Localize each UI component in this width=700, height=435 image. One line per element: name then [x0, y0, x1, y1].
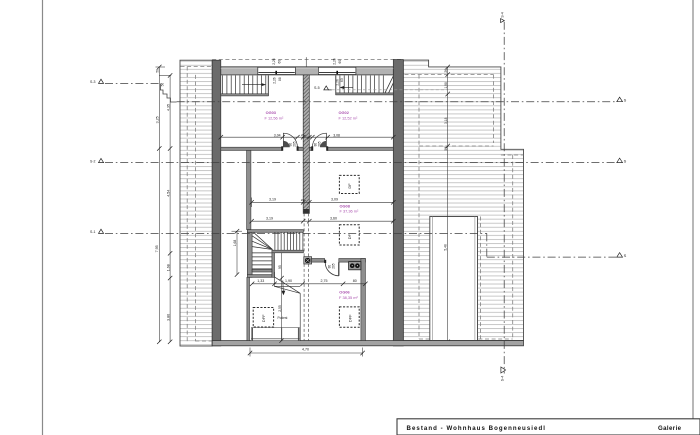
svg-text:1,90: 1,90 — [285, 279, 292, 283]
svg-text:1,98: 1,98 — [444, 82, 448, 89]
svg-text:7,95: 7,95 — [155, 245, 159, 252]
svg-text:95: 95 — [278, 265, 282, 269]
svg-text:3,08: 3,08 — [333, 133, 340, 137]
svg-text:4,70: 4,70 — [302, 347, 309, 351]
svg-text:S: S — [624, 159, 627, 164]
svg-text:S: S — [624, 98, 627, 103]
svg-text:88: 88 — [278, 77, 282, 81]
svg-text:4,35: 4,35 — [166, 104, 170, 111]
svg-text:2,75: 2,75 — [321, 279, 328, 283]
svg-text:F 12,52 m²: F 12,52 m² — [339, 115, 359, 120]
svg-text:2,55: 2,55 — [278, 305, 282, 312]
svg-text:50: 50 — [444, 147, 448, 151]
svg-text:1,33: 1,33 — [257, 279, 264, 283]
svg-text:DF: DF — [347, 183, 352, 189]
svg-text:Galerie: Galerie — [658, 425, 682, 432]
svg-text:S: S — [624, 253, 627, 258]
svg-text:26: 26 — [301, 198, 305, 202]
svg-text:3,18: 3,18 — [444, 117, 448, 124]
svg-text:S-2: S-2 — [90, 159, 96, 163]
svg-text:80: 80 — [353, 279, 357, 283]
svg-text:Podest: Podest — [278, 316, 288, 320]
svg-text:60: 60 — [338, 60, 342, 64]
svg-text:2,26: 2,26 — [273, 77, 277, 84]
svg-text:205: 205 — [332, 263, 336, 269]
svg-text:60: 60 — [340, 78, 344, 82]
svg-text:1,68: 1,68 — [166, 264, 170, 271]
svg-text:3,19: 3,19 — [269, 198, 276, 202]
svg-text:OG06: OG06 — [339, 289, 350, 294]
svg-text:5,48: 5,48 — [443, 244, 447, 251]
svg-text:DF: DF — [347, 234, 352, 240]
svg-text:2,26: 2,26 — [333, 58, 337, 65]
svg-text:26: 26 — [301, 133, 305, 137]
svg-text:3,04: 3,04 — [274, 133, 281, 137]
svg-text:56: 56 — [161, 83, 165, 87]
svg-text:3,25: 3,25 — [156, 116, 160, 123]
svg-text:3,80: 3,80 — [166, 314, 170, 321]
svg-text:205: 205 — [292, 141, 296, 147]
svg-text:DFF: DFF — [347, 314, 352, 322]
svg-text:205: 205 — [317, 141, 321, 147]
svg-text:4,54: 4,54 — [166, 190, 170, 197]
svg-text:3,09: 3,09 — [331, 198, 338, 202]
svg-text:S-4: S-4 — [500, 376, 504, 382]
svg-text:2,26: 2,26 — [272, 58, 276, 65]
svg-text:F 37,36 m²: F 37,36 m² — [340, 208, 360, 213]
svg-text:3,60: 3,60 — [330, 217, 337, 221]
svg-text:S-3: S-3 — [90, 80, 96, 84]
svg-text:S-5: S-5 — [314, 86, 320, 90]
svg-text:2,26: 2,26 — [336, 79, 340, 86]
svg-text:1,68: 1,68 — [233, 240, 237, 247]
svg-text:Bestand - Wohnhaus Bogenneusie: Bestand - Wohnhaus Bogenneusiedl — [407, 425, 546, 432]
svg-text:S-4: S-4 — [501, 12, 505, 18]
svg-text:3,19: 3,19 — [266, 217, 273, 221]
svg-text:DFF: DFF — [261, 314, 266, 322]
svg-text:26: 26 — [444, 69, 448, 73]
svg-text:60: 60 — [278, 60, 282, 64]
svg-text:F 12,56 m²: F 12,56 m² — [265, 115, 285, 120]
svg-text:F 38,35 m²: F 38,35 m² — [339, 295, 359, 300]
svg-text:50: 50 — [156, 69, 160, 73]
svg-text:S-1: S-1 — [90, 230, 96, 234]
